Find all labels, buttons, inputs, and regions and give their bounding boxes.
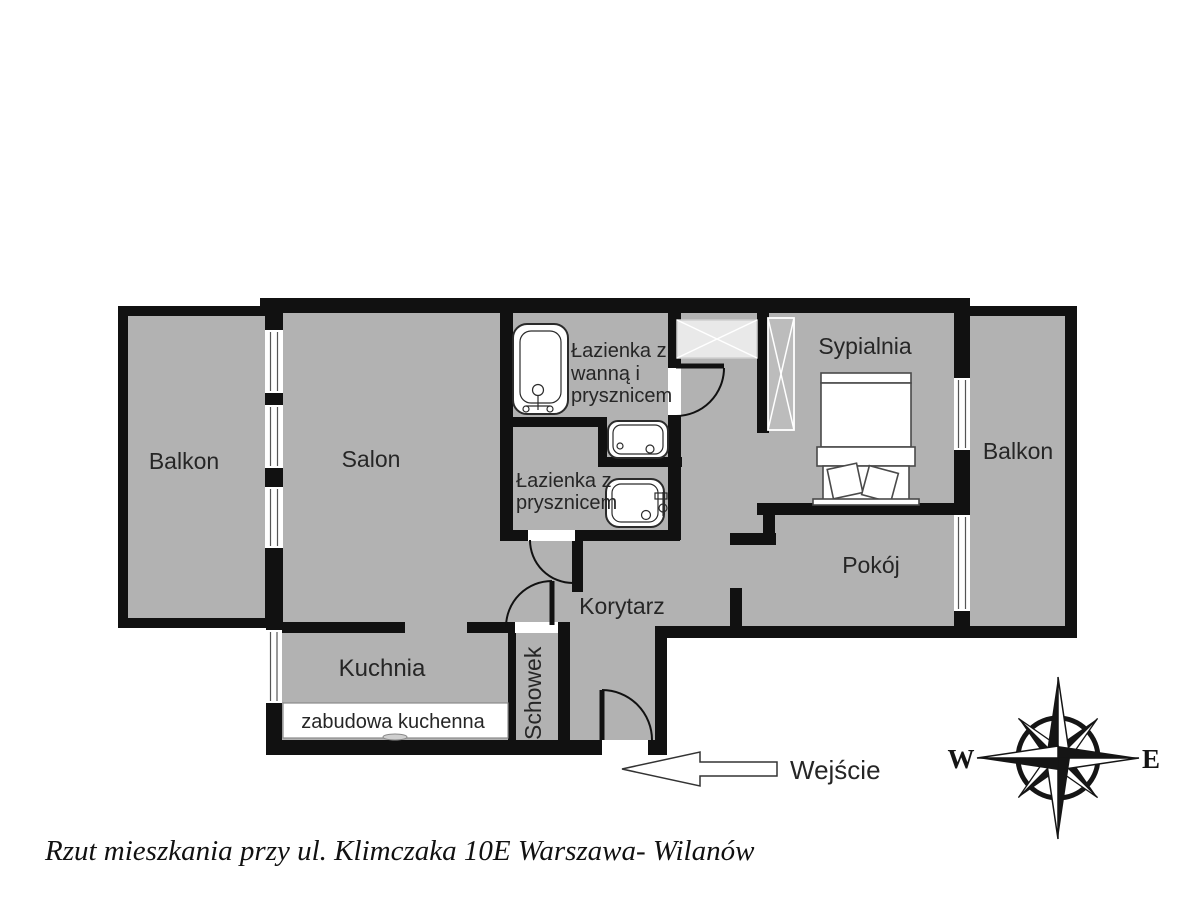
label-bathroom2-line2: prysznicem bbox=[516, 492, 617, 514]
label-sypialnia: Sypialnia bbox=[818, 333, 912, 359]
washbasin-icon bbox=[608, 421, 668, 458]
label-bathroom1-line2: wanną i bbox=[570, 363, 640, 385]
label-pokoj: Pokój bbox=[842, 552, 900, 578]
compass-rose-icon: W E bbox=[948, 677, 1161, 839]
window-room bbox=[954, 515, 970, 611]
compass-east-label: E bbox=[1142, 744, 1160, 774]
compass-west-label: W bbox=[948, 744, 975, 774]
bathtub-icon bbox=[513, 324, 568, 414]
label-wejscie: Wejście bbox=[790, 755, 881, 785]
pillow-icon bbox=[862, 466, 899, 503]
window-salon-2 bbox=[265, 405, 283, 468]
label-salon: Salon bbox=[342, 446, 401, 472]
entrance-door-opening bbox=[602, 740, 648, 755]
floorplan-page: Balkon Salon Łazienka z wanną i prysznic… bbox=[0, 0, 1200, 904]
window-salon-3 bbox=[265, 487, 283, 548]
wardrobe-vertical-icon bbox=[768, 318, 794, 430]
entrance-arrow-icon bbox=[622, 752, 777, 786]
window-kitchen bbox=[266, 630, 282, 703]
entrance-indicator: Wejście bbox=[622, 752, 881, 786]
label-balkon-right: Balkon bbox=[983, 438, 1053, 464]
label-balkon-left: Balkon bbox=[149, 448, 219, 474]
wardrobe-horizontal-icon bbox=[677, 320, 757, 358]
window-bedroom bbox=[954, 378, 970, 450]
label-bathroom2-line1: Łazienka z bbox=[516, 470, 612, 492]
floor-balcony-right bbox=[968, 313, 1068, 628]
label-bathroom1-line1: Łazienka z bbox=[571, 340, 667, 362]
window-salon-1 bbox=[265, 330, 283, 393]
bed-icon bbox=[813, 373, 919, 505]
label-kuchnia: Kuchnia bbox=[339, 655, 426, 682]
label-schowek: Schowek bbox=[520, 646, 546, 740]
label-bathroom1-line3: prysznicem bbox=[571, 385, 672, 407]
floorplan-svg: Balkon Salon Łazienka z wanną i prysznic… bbox=[0, 0, 1200, 904]
compass-cardinal-points bbox=[977, 677, 1139, 839]
label-korytarz: Korytarz bbox=[579, 593, 665, 619]
bathroom2-door-opening bbox=[528, 530, 575, 541]
floorplan-caption: Rzut mieszkania przy ul. Klimczaka 10E W… bbox=[44, 835, 755, 867]
label-zabudowa: zabudowa kuchenna bbox=[301, 711, 485, 733]
pillow-icon bbox=[827, 463, 863, 499]
